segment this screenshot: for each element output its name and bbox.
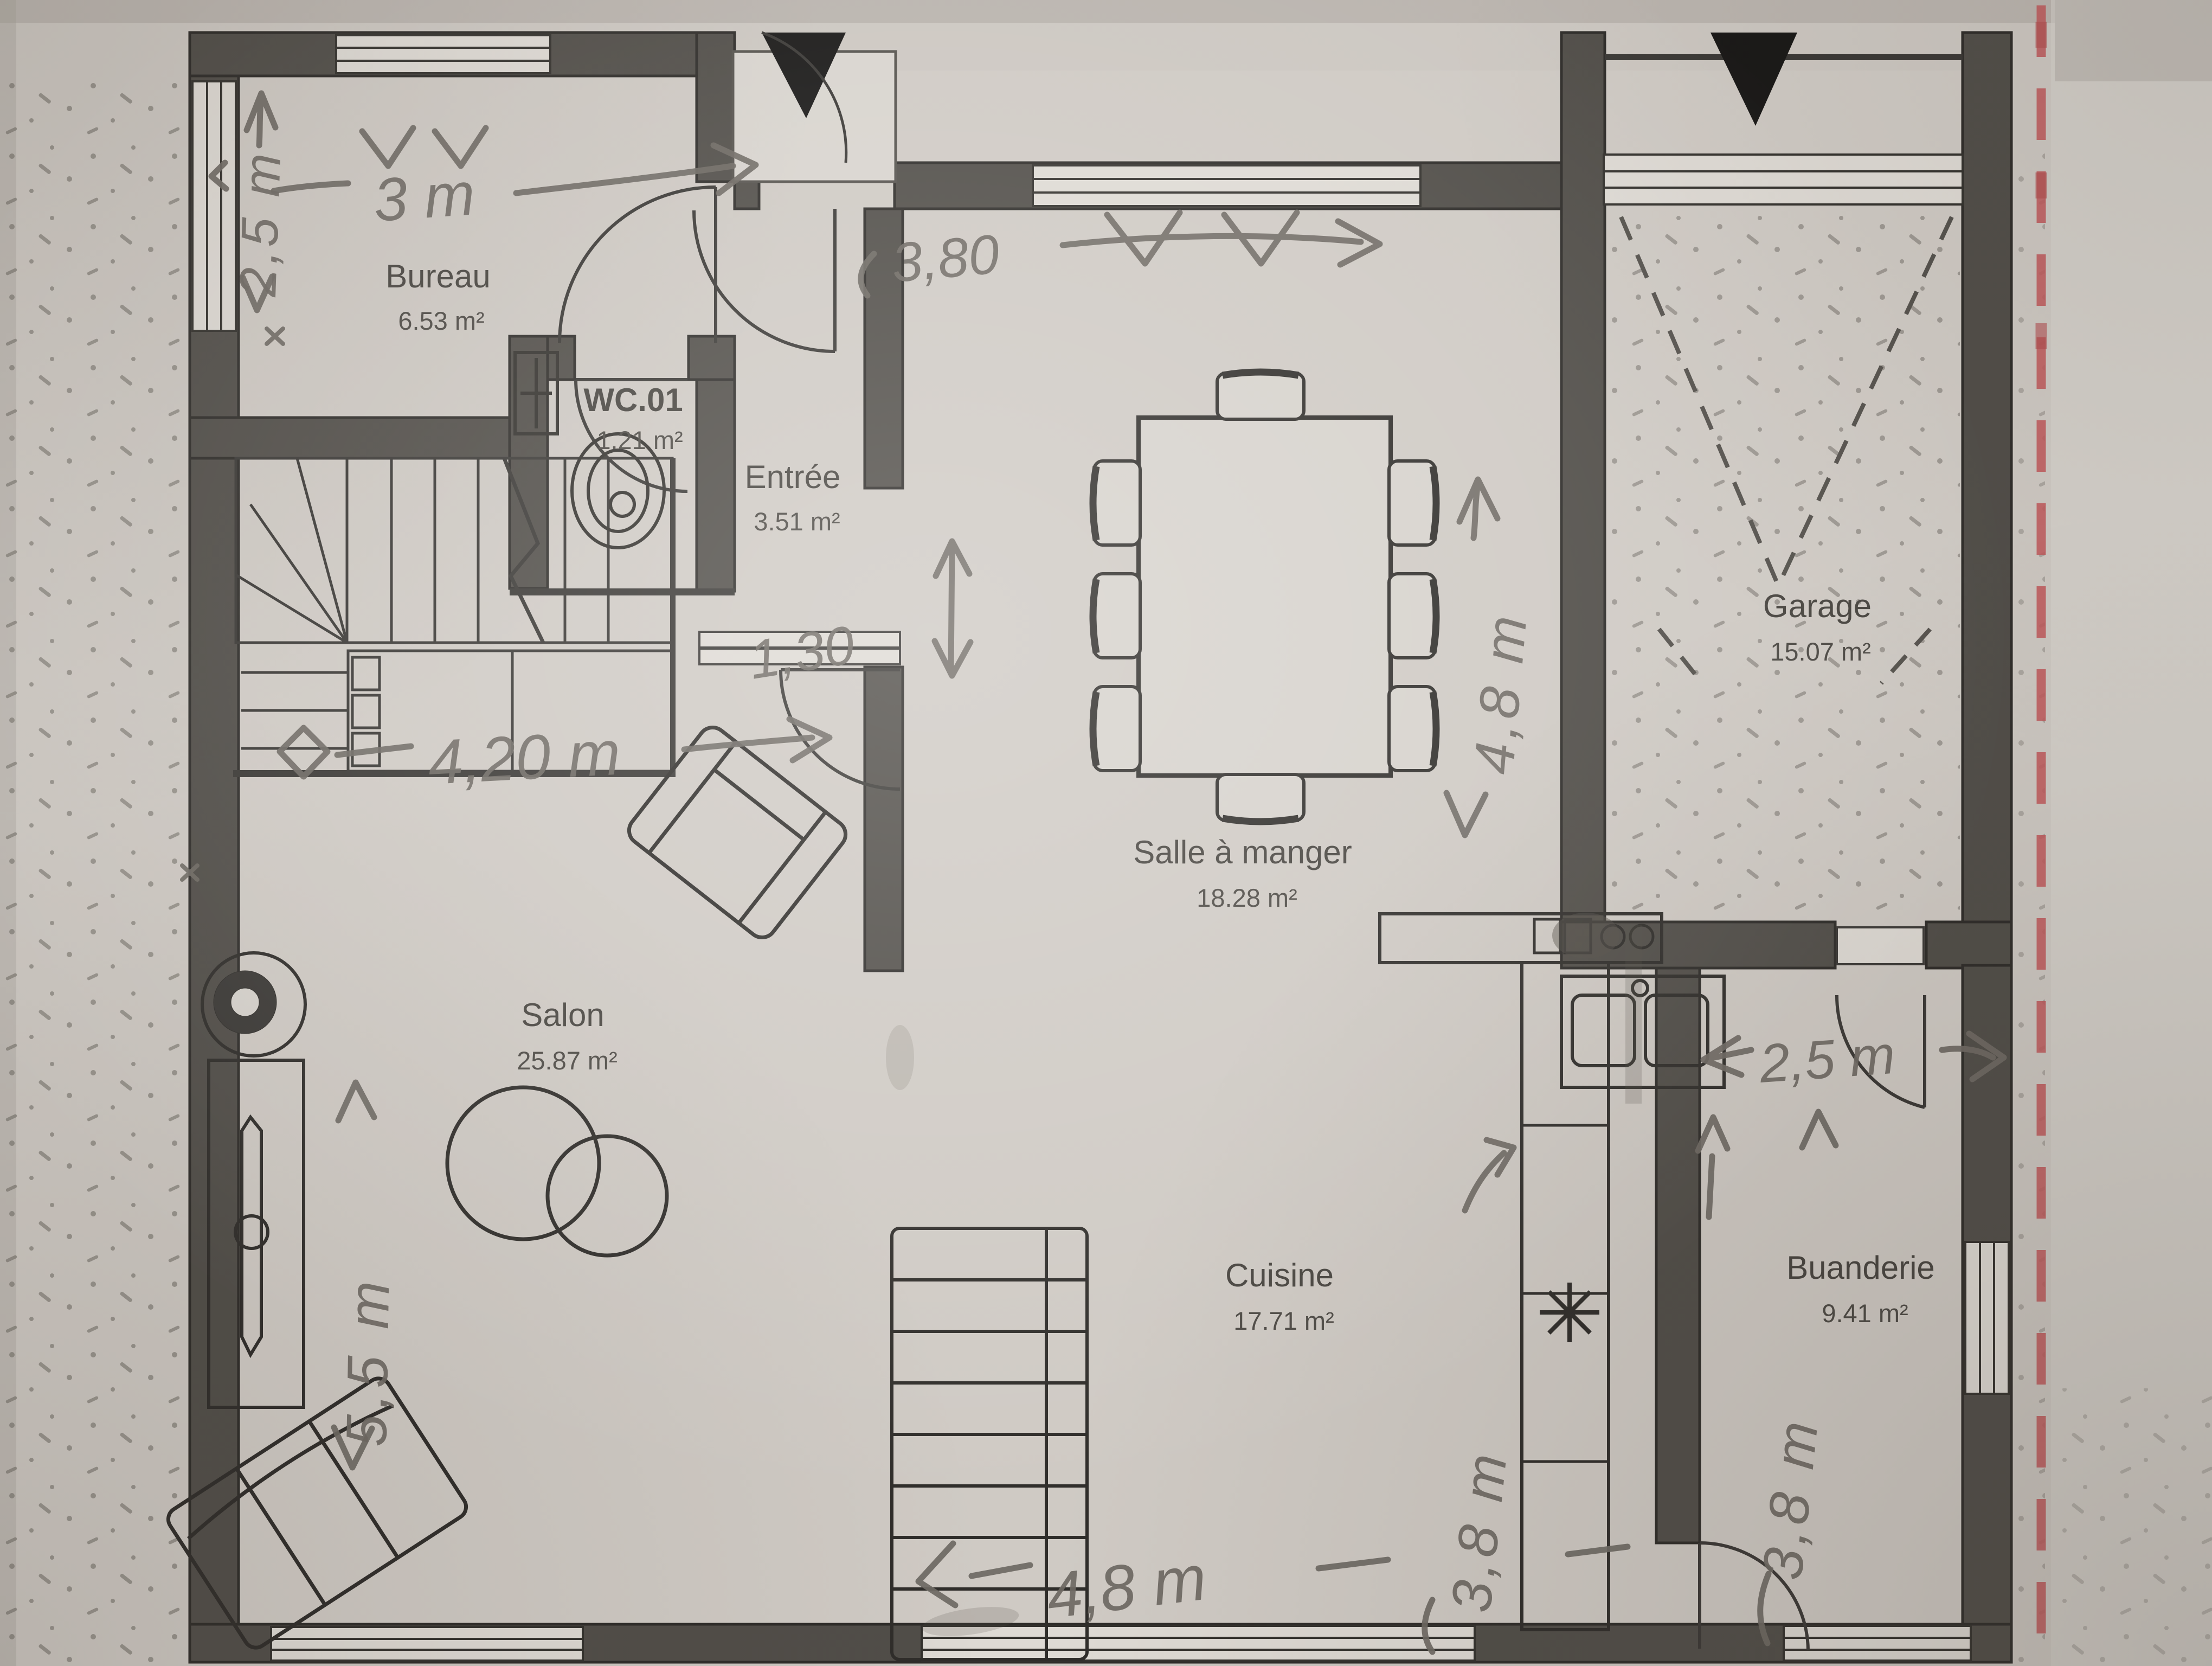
dim-hall-width: 4,20 m [427,717,622,798]
window-salon-bottom [271,1627,583,1661]
room-area-salon: 25.87 m² [517,1046,617,1075]
room-area-garage: 15.07 m² [1770,637,1870,666]
dim-buanderie-width: 2,5 m [1757,1024,1897,1094]
floor-plan-svg: 2,5 m 3 m 3,80 4,8 m 1,30 4,20 m 5,5 m 3… [0,0,2212,1666]
room-area-entree: 3.51 m² [754,507,840,536]
room-label-wc: WC.01 [583,382,683,418]
room-label-entree: Entrée [745,459,841,495]
room-area-salle: 18.28 m² [1197,883,1297,912]
dim-salle-width: 3,80 [889,223,1002,294]
room-label-salle: Salle à manger [1133,834,1352,870]
window-buanderie-right [1965,1242,2009,1394]
room-area-wc: 1.21 m² [596,426,683,454]
window-bay-bottom [922,1626,1475,1661]
dim-salon-height: 5,5 m [335,1275,401,1447]
window-salle-top [1033,165,1420,206]
dim-bureau-width: 3 m [371,159,477,234]
floor-plan-photo: 2,5 m 3 m 3,80 4,8 m 1,30 4,20 m 5,5 m 3… [0,0,2212,1666]
dim-left-height: 2,5 m [229,149,292,298]
garage-door [1604,155,1963,204]
window-bureau-top [336,35,550,73]
room-label-buanderie: Buanderie [1786,1249,1935,1286]
window-buanderie-bottom [1784,1626,1971,1661]
room-area-bureau: 6.53 m² [398,306,484,335]
room-area-buanderie: 9.41 m² [1822,1299,1908,1328]
room-label-bureau: Bureau [385,258,490,294]
room-label-salon: Salon [521,997,604,1033]
room-label-cuisine: Cuisine [1225,1257,1334,1293]
room-label-garage: Garage [1763,588,1872,624]
room-area-cuisine: 17.71 m² [1233,1306,1334,1335]
dining-table-set [1093,372,1436,822]
